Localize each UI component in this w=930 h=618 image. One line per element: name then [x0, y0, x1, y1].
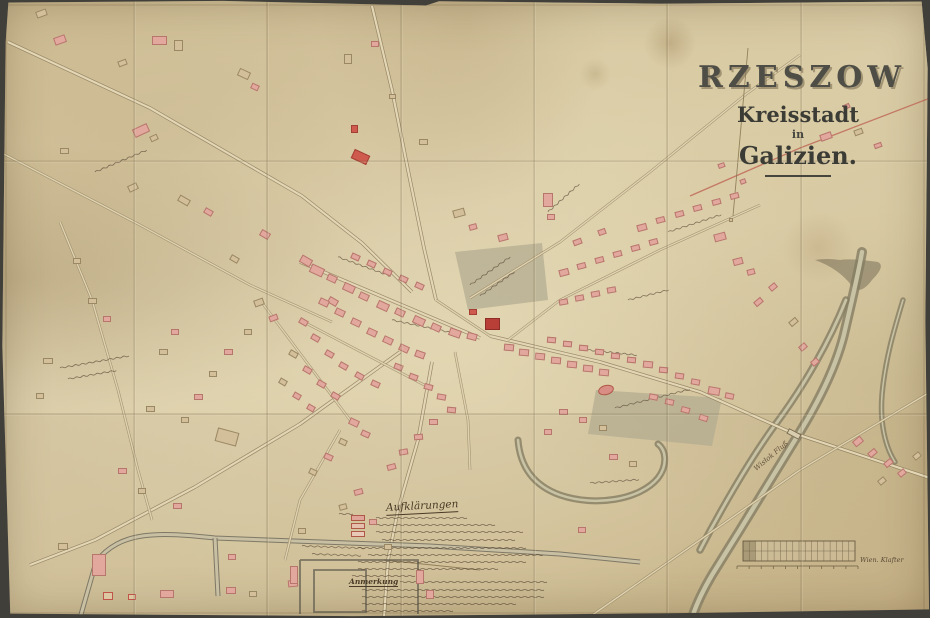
- building-footprint: [578, 527, 586, 533]
- scalebar-unit-label: Wien. Klafter: [860, 556, 904, 564]
- building-footprint: [88, 298, 97, 304]
- former-cemetery-area: [455, 243, 548, 310]
- building-footprint: [73, 258, 81, 264]
- legend-color-swatch: [351, 515, 365, 521]
- building-footprint: [419, 139, 428, 145]
- building-footprint: [627, 357, 636, 364]
- building-footprint: [103, 592, 113, 600]
- building-footprint: [181, 417, 189, 423]
- legend-color-swatch: [351, 531, 365, 537]
- handwritten-annotation: [302, 545, 365, 548]
- road-line: [30, 352, 400, 565]
- building-footprint: [447, 407, 456, 414]
- building-footprint: [675, 372, 685, 379]
- building-footprint: [543, 193, 553, 207]
- handwritten-annotation: [68, 370, 116, 380]
- map-paper: Wisłok Fluß RZESZOW Kreisstadt in Galizi…: [0, 0, 930, 618]
- road-line: [60, 222, 152, 520]
- handwritten-annotation: [382, 539, 515, 540]
- building-footprint: [344, 54, 352, 64]
- building-footprint: [228, 554, 236, 560]
- handwritten-annotation: [376, 517, 467, 518]
- handwritten-annotation: [590, 479, 639, 484]
- handwritten-annotation: [628, 289, 669, 300]
- building-footprint: [691, 378, 701, 385]
- building-footprint: [194, 394, 203, 400]
- building-footprint: [426, 590, 434, 599]
- legend-color-swatch: [351, 523, 365, 529]
- road-line: [96, 534, 640, 562]
- building-footprint: [414, 434, 423, 441]
- historical-map-photo: Wisłok Fluß RZESZOW Kreisstadt in Galizi…: [0, 0, 930, 618]
- building-footprint: [599, 425, 607, 431]
- building-footprint: [429, 419, 438, 425]
- building-footprint: [563, 341, 572, 348]
- building-footprint: [599, 369, 610, 377]
- building-footprint: [173, 503, 182, 509]
- building-footprint: [159, 349, 168, 355]
- building-footprint: [298, 528, 306, 534]
- building-footprint: [389, 94, 396, 99]
- road-line: [455, 352, 470, 470]
- road-surface: [96, 534, 640, 562]
- map-title-subtitle: Kreisstadt: [698, 102, 898, 127]
- building-footprint: [659, 367, 668, 374]
- building-footprint: [729, 218, 733, 222]
- handwritten-annotation: [362, 589, 544, 590]
- map-title-block: RZESZOW Kreisstadt in Galizien.: [698, 60, 898, 177]
- building-footprint: [171, 329, 179, 335]
- building-footprint: [224, 349, 233, 355]
- map-title-connector: in: [698, 128, 898, 141]
- handwritten-annotation: [95, 150, 147, 173]
- building-footprint: [36, 393, 44, 399]
- road-surface: [372, 6, 436, 300]
- building-footprint: [416, 570, 424, 584]
- building-footprint: [371, 41, 379, 47]
- handwritten-annotation: [368, 554, 543, 555]
- building-footprint: [174, 40, 183, 51]
- river-channel-fill: [518, 440, 665, 501]
- building-footprint: [547, 337, 556, 344]
- building-footprint: [43, 358, 53, 364]
- building-footprint: [535, 353, 546, 361]
- handwritten-annotation: [362, 596, 544, 597]
- building-footprint: [544, 429, 552, 435]
- building-footprint: [146, 406, 155, 412]
- handwritten-annotation: [312, 553, 361, 556]
- building-footprint: [485, 318, 500, 330]
- river-channel-fill: [692, 252, 862, 618]
- road-surface: [30, 352, 400, 565]
- handwritten-annotation: [358, 568, 498, 569]
- river-bend-shading: [815, 259, 881, 290]
- building-footprint: [643, 361, 654, 369]
- building-footprint: [226, 587, 236, 594]
- building-footprint: [609, 454, 618, 460]
- building-footprint: [583, 365, 594, 373]
- building-footprint: [209, 371, 217, 377]
- building-footprint: [384, 544, 392, 550]
- legend-note-heading: Anmerkung: [349, 577, 398, 587]
- building-footprint: [629, 461, 637, 467]
- handwritten-annotation: [362, 610, 453, 611]
- building-footprint: [58, 543, 68, 550]
- map-title-city: RZESZOW: [698, 60, 898, 95]
- building-footprint: [611, 353, 620, 360]
- building-footprint: [160, 590, 174, 598]
- building-footprint: [128, 594, 136, 600]
- building-footprint: [547, 214, 555, 220]
- building-footprint: [290, 566, 298, 584]
- building-footprint: [579, 417, 587, 423]
- building-footprint: [60, 148, 69, 154]
- building-footprint: [244, 329, 252, 335]
- handwritten-annotation: [376, 531, 523, 532]
- building-footprint: [551, 357, 562, 365]
- building-footprint: [437, 393, 447, 400]
- handwritten-annotation: [60, 355, 129, 368]
- building-footprint: [351, 125, 358, 133]
- building-footprint: [103, 316, 111, 322]
- handwritten-annotation: [338, 256, 391, 276]
- title-underline: [765, 175, 831, 177]
- building-footprint: [579, 345, 588, 352]
- building-footprint: [519, 349, 530, 357]
- building-footprint: [152, 36, 167, 45]
- road-surface: [508, 300, 560, 340]
- building-footprint: [118, 468, 127, 474]
- building-footprint: [249, 591, 257, 597]
- building-footprint: [92, 554, 106, 576]
- building-footprint: [504, 344, 515, 352]
- building-footprint: [138, 488, 146, 494]
- building-footprint: [567, 361, 578, 369]
- building-footprint: [559, 409, 568, 415]
- building-footprint: [369, 519, 377, 525]
- road-surface: [0, 152, 332, 322]
- handwritten-annotation: [358, 561, 526, 562]
- map-title-region: Galizien.: [698, 141, 898, 170]
- building-footprint: [469, 309, 477, 315]
- building-footprint: [595, 349, 604, 356]
